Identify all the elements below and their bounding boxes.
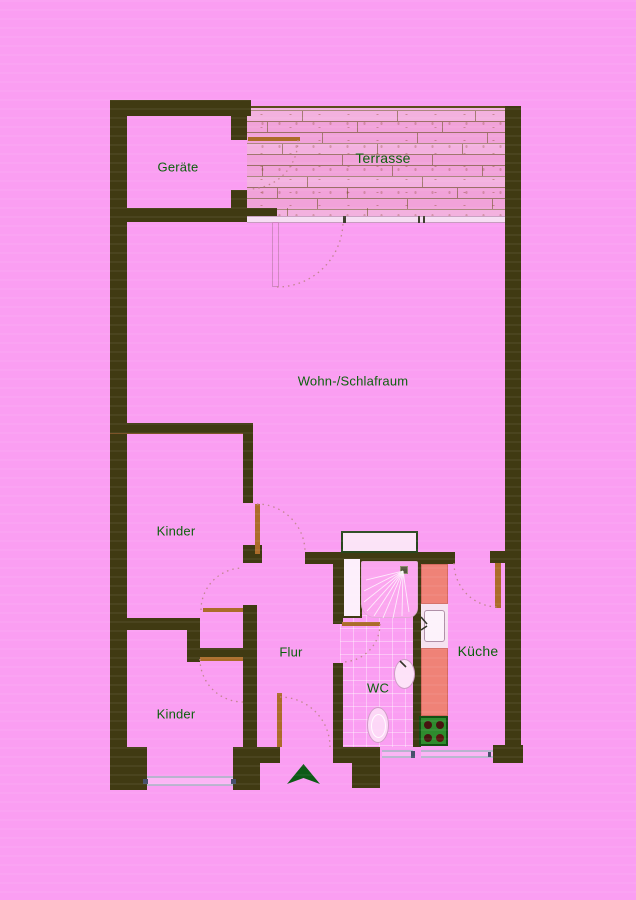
plank-joint (267, 122, 268, 132)
plank-joint (417, 133, 418, 143)
wc-wall-left-lower (333, 663, 343, 747)
entrance-jamb-block-lower (233, 763, 260, 790)
kitchen-door-jamb (490, 551, 505, 563)
door-arc (280, 697, 330, 747)
plank-joint (277, 188, 278, 198)
door-arc (201, 568, 243, 610)
window-end-cap (231, 779, 236, 784)
window-end-cap (488, 752, 491, 757)
plank-joint (282, 144, 283, 154)
room-label-flur: Flur (279, 645, 302, 660)
plank-joint (457, 188, 458, 198)
door-arc (454, 563, 498, 607)
plank-joint (357, 122, 358, 132)
geraete-door-leaf (248, 137, 300, 141)
door-arc (200, 659, 243, 702)
plank-joint (307, 177, 308, 187)
kitchen-door-leaf (495, 563, 501, 608)
terrace-glass-front (247, 216, 505, 223)
kinder2-door-leaf (200, 657, 243, 661)
corner-block-bottom-left (110, 747, 147, 790)
shower-drain (400, 566, 408, 574)
door-arc (277, 221, 343, 287)
glass-mullion (343, 216, 346, 223)
plank-joint (347, 188, 348, 198)
geraete-wall-right-upper (231, 100, 247, 140)
plank-joint (422, 177, 423, 187)
plank-joint (322, 133, 323, 143)
corner-block-bottom-right (493, 745, 523, 763)
room-label-kinder-1: Kinder (157, 524, 196, 539)
burner (424, 721, 432, 729)
plank-joint (462, 144, 463, 154)
plank-joint (262, 166, 263, 176)
plank-joint (432, 155, 433, 165)
flur-kinder2-wall (243, 605, 257, 747)
stove (419, 716, 448, 746)
wc-wall-bottom (333, 747, 380, 763)
window-end-cap (411, 751, 415, 758)
burner (424, 734, 432, 742)
kinder2-wall-top-left (127, 618, 188, 630)
wc-wall-bottom-foot (352, 763, 380, 788)
plank-joint (392, 166, 393, 176)
plank-joint (397, 111, 398, 121)
washbasin (394, 659, 415, 689)
kitchen-window (421, 750, 493, 758)
room-label-wc: WC (367, 681, 389, 696)
plank-joint (492, 199, 493, 209)
shower (361, 561, 418, 618)
plank-joint (482, 166, 483, 176)
room-label-wohn-schlafraum: Wohn-/Schlafraum (298, 374, 409, 389)
entrance-arrow-icon (287, 764, 320, 784)
toilet (367, 707, 389, 743)
room-label-terrasse: Terrasse (355, 150, 410, 166)
glass-mullion (423, 216, 425, 223)
plank-joint (302, 111, 303, 121)
wc-door-leaf (342, 622, 380, 626)
kinder1-door-leaf (255, 504, 260, 554)
outer-wall-left (110, 100, 127, 790)
outer-wall-right (505, 106, 521, 763)
glass-mullion (418, 216, 420, 223)
kinder1-wall-right (243, 423, 253, 503)
plank-joint (487, 133, 488, 143)
window-end-cap (143, 779, 148, 784)
room-label-geraete: Geräte (158, 160, 199, 175)
outer-wall-top (110, 100, 251, 116)
wc-window (382, 750, 413, 758)
floor-plan: Geräte Terrasse Wohn-/Schlafraum Kinder … (0, 0, 636, 900)
kitchen-sink (424, 610, 445, 642)
door-arc (257, 504, 305, 552)
kitchen-sink-unit (421, 604, 448, 648)
room-label-kueche: Küche (458, 643, 499, 659)
plank-joint (475, 111, 476, 121)
toilet-bowl (371, 714, 386, 738)
terrace-door-leaf (272, 222, 279, 287)
plank-joint (317, 199, 318, 209)
shaft (342, 557, 362, 618)
kitchen-counter (421, 564, 448, 604)
sideboard (341, 531, 418, 553)
room-label-kinder-2: Kinder (157, 707, 196, 722)
kitchen-counter (421, 648, 448, 716)
burner (436, 721, 444, 729)
kinder2-window (147, 776, 233, 786)
kinder1-wall-top (110, 423, 253, 434)
plank-joint (407, 199, 408, 209)
entrance-jamb-block (233, 747, 280, 763)
plank-joint (342, 155, 343, 165)
vestibule-door-leaf (203, 608, 243, 612)
plank-joint (442, 122, 443, 132)
burner (436, 734, 444, 742)
entrance-door-leaf (277, 693, 282, 747)
